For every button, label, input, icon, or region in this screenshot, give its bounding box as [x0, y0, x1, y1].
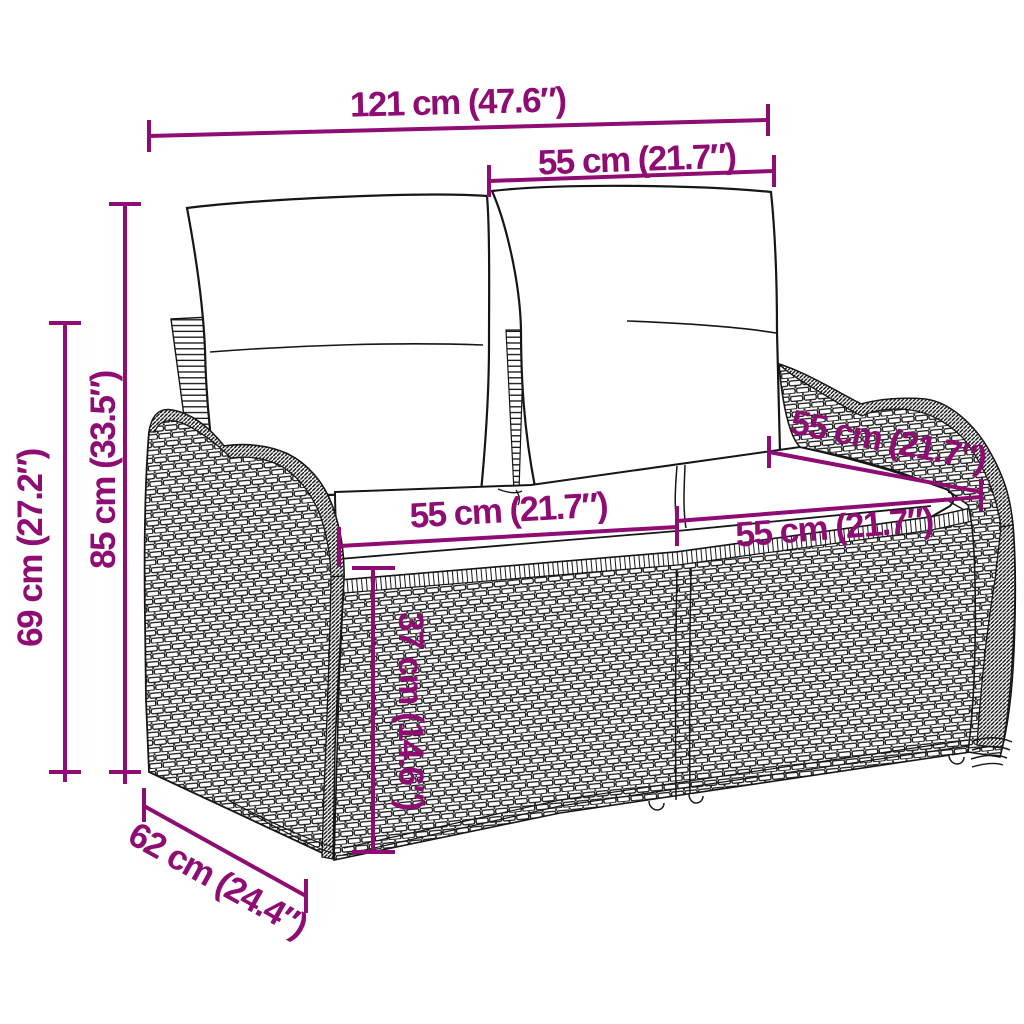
svg-text:121 cm (47.6″): 121 cm (47.6″)	[349, 80, 566, 124]
svg-text:69 cm (27.2″): 69 cm (27.2″)	[11, 449, 50, 647]
svg-text:85 cm (33.5″): 85 cm (33.5″)	[84, 371, 123, 569]
svg-text:37 cm (14.6″): 37 cm (14.6″)	[391, 612, 430, 810]
svg-text:55 cm (21.7″): 55 cm (21.7″)	[537, 137, 736, 183]
